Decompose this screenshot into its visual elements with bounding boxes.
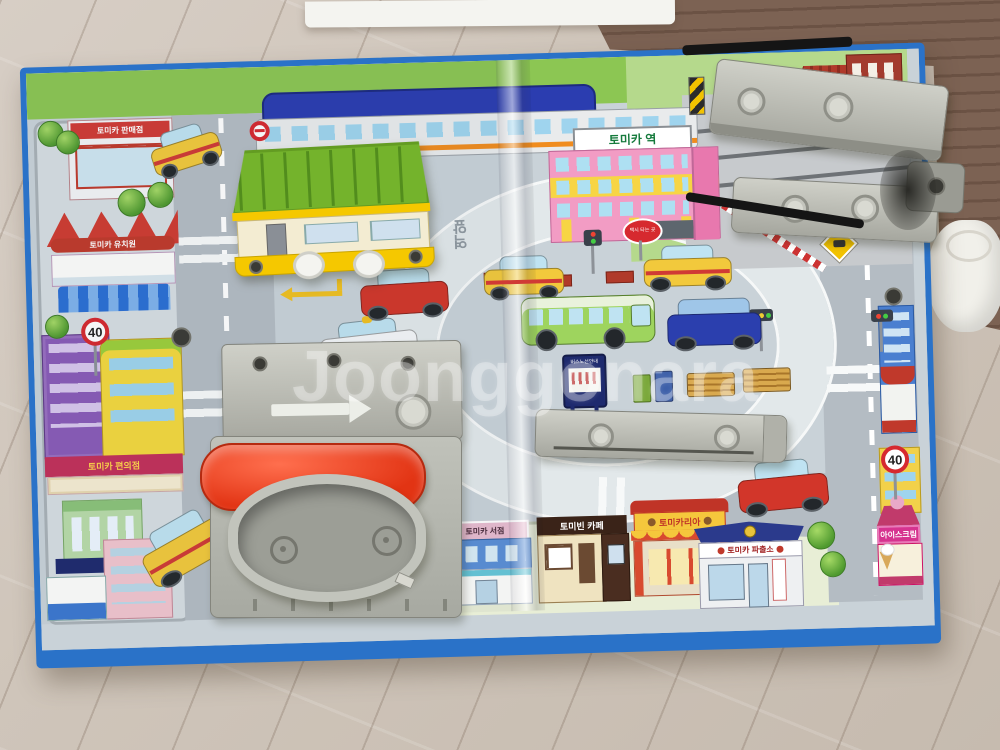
- station-pillar: [561, 219, 572, 241]
- taxi-stand-text: 택시 타는 곳: [630, 228, 656, 234]
- cafe-window: [544, 544, 573, 571]
- station-window-row: [556, 154, 688, 172]
- police-body: [699, 555, 804, 609]
- red-lamp: [590, 232, 595, 237]
- police-window: [708, 564, 745, 601]
- ramp-rivet: [736, 86, 767, 117]
- basin-ring-dot: [280, 546, 286, 552]
- traffic-light: [871, 309, 893, 322]
- cafe-sign-text: 토미빈 카페: [560, 518, 604, 532]
- police-light-right: [777, 546, 784, 553]
- watermark-text: Joonggonara: [292, 337, 759, 417]
- green-lamp: [590, 239, 595, 244]
- right-blue-building: [878, 305, 918, 434]
- building-lower: [881, 384, 916, 433]
- red-lamp: [876, 313, 881, 318]
- basin-ring: [372, 526, 402, 556]
- burger-icon: [648, 518, 656, 526]
- icecream-sign: 아이스크림: [877, 525, 920, 544]
- cafe: 토미빈 카페: [536, 507, 629, 601]
- traffic-light: [584, 230, 602, 246]
- white-furniture-edge: [305, 0, 675, 28]
- police-banner: [772, 559, 787, 601]
- launcher-end-cap: [762, 416, 786, 463]
- launcher-rivet: [588, 423, 615, 450]
- police-door: [748, 563, 769, 608]
- container-door: [266, 223, 288, 258]
- tissue-roll: [928, 220, 1000, 332]
- basin-ring-dot: [383, 537, 389, 543]
- striped-pole: [688, 77, 705, 115]
- cafe-tower-window: [607, 544, 625, 564]
- station-window-row: [557, 200, 689, 218]
- speed-limit-text: 40: [888, 452, 903, 467]
- toy-oval-basin[interactable]: [228, 474, 426, 602]
- launcher-rivet: [714, 424, 741, 451]
- basin-ring: [270, 536, 298, 564]
- ramp-hole: [252, 356, 267, 371]
- cafe-door: [578, 543, 595, 583]
- marketplace-watermark: Joonggonara: [292, 336, 759, 418]
- police-sign-text: 토미카 파출소: [727, 544, 774, 556]
- container-window: [304, 222, 359, 245]
- red-suv-illustration: [735, 456, 830, 517]
- platform-bench: [606, 271, 634, 284]
- ramp-rivet: [822, 90, 855, 123]
- red-awning: [880, 366, 914, 385]
- bus-windows: [529, 307, 629, 326]
- cafe-tower: [601, 533, 631, 602]
- police-box: 토미카 파출소: [694, 520, 806, 607]
- icecream-sign-text: 아이스크림: [880, 528, 917, 540]
- green-lamp: [765, 312, 770, 317]
- train-glyph: [833, 240, 845, 247]
- cafe-body: [537, 534, 607, 604]
- bus-windshield: [631, 304, 652, 327]
- taxi-illustration: [643, 244, 732, 290]
- photo-of-toy-playmat: 토미카 역 토미카 판매점 토미카 유치원: [0, 0, 1000, 750]
- sign-pole: [639, 240, 643, 260]
- container-window: [370, 218, 421, 241]
- toy-container-building[interactable]: [229, 141, 433, 275]
- dark-tunnel-shadow: [880, 150, 936, 230]
- green-lamp: [883, 313, 888, 318]
- roof-ridges: [237, 145, 422, 210]
- station-sign-text: 토미카 역: [609, 130, 657, 148]
- tissue-roll-core: [946, 230, 992, 262]
- police-light-left: [717, 547, 724, 554]
